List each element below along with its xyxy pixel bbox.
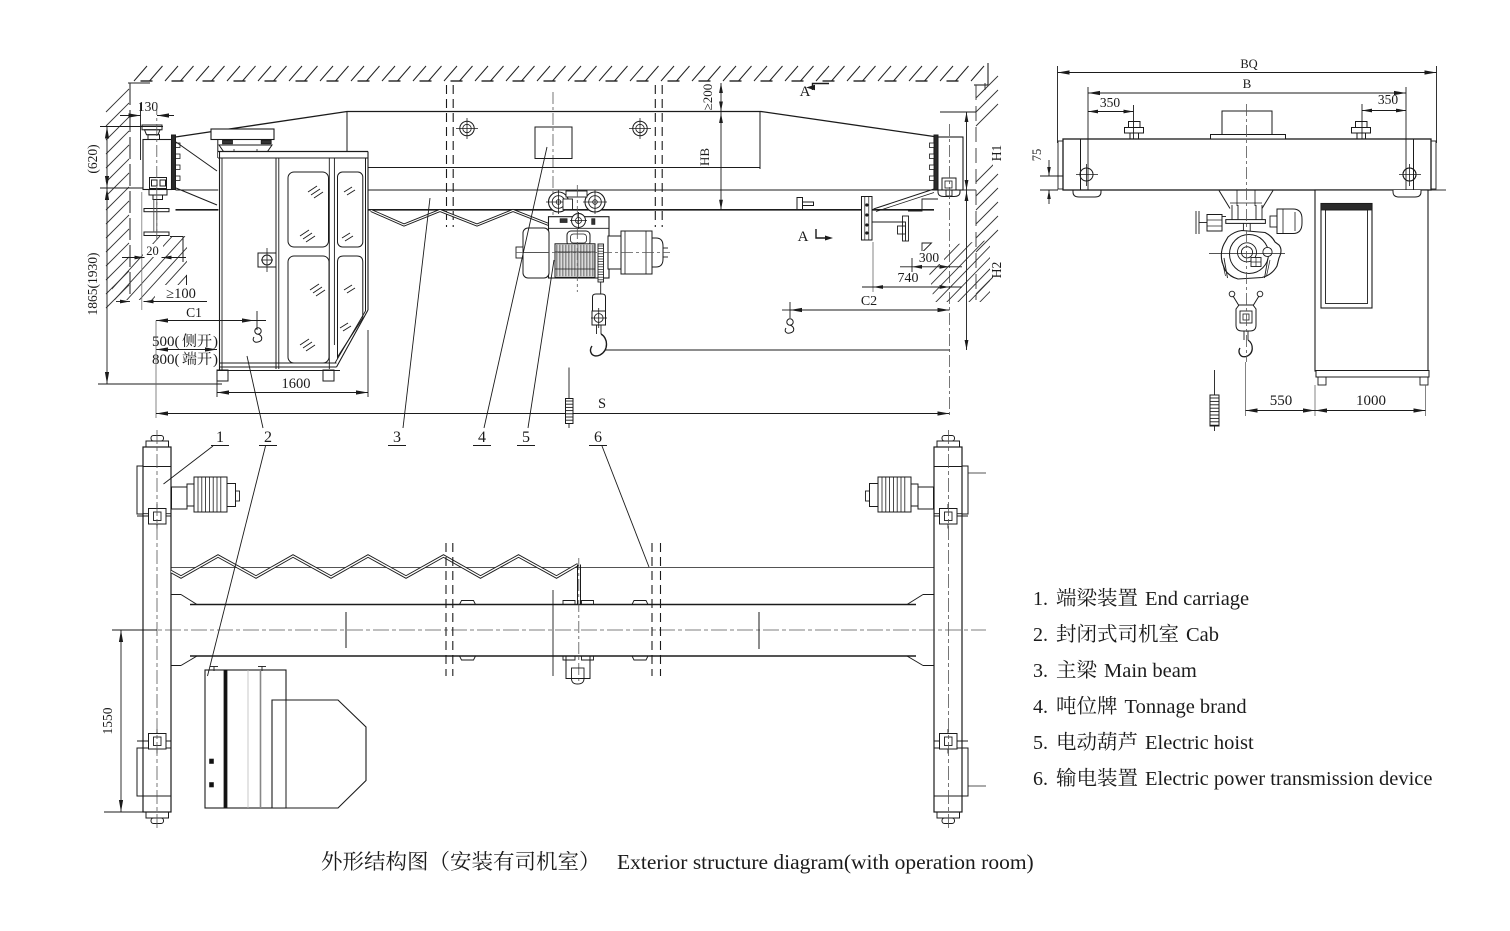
- svg-text:3: 3: [393, 429, 401, 446]
- svg-text:≥100: ≥100: [166, 286, 196, 302]
- svg-text:BQ: BQ: [1240, 57, 1257, 71]
- svg-text:): ): [213, 352, 218, 368]
- svg-text:Main beam: Main beam: [1104, 660, 1197, 682]
- svg-text:C1: C1: [186, 305, 202, 320]
- svg-text:4.: 4.: [1033, 696, 1048, 718]
- svg-text:Exterior structure diagram(wit: Exterior structure diagram(with operatio…: [617, 850, 1034, 874]
- svg-text:75: 75: [1030, 149, 1044, 162]
- svg-text:4: 4: [478, 429, 486, 446]
- svg-text:300: 300: [919, 250, 940, 265]
- svg-text:C2: C2: [861, 294, 877, 309]
- svg-text:A: A: [798, 229, 809, 245]
- svg-text:Electric hoist: Electric hoist: [1145, 732, 1254, 754]
- svg-text:350: 350: [1378, 92, 1399, 107]
- svg-text:Electric power transmission de: Electric power transmission device: [1145, 768, 1432, 790]
- svg-text:1600: 1600: [282, 376, 311, 392]
- svg-text:1000: 1000: [1356, 393, 1386, 409]
- svg-text:A: A: [800, 84, 811, 100]
- svg-text:(620): (620): [85, 144, 100, 173]
- svg-text:6.: 6.: [1033, 768, 1048, 790]
- svg-text:3.: 3.: [1033, 660, 1048, 682]
- svg-text:5.: 5.: [1033, 732, 1048, 754]
- svg-text:2.: 2.: [1033, 624, 1048, 646]
- svg-text:20: 20: [146, 244, 159, 258]
- svg-text:1.: 1.: [1033, 588, 1048, 610]
- svg-text:1550: 1550: [100, 707, 115, 734]
- svg-text:): ): [213, 334, 218, 350]
- svg-text:350: 350: [1100, 95, 1121, 110]
- svg-text:HB: HB: [697, 148, 712, 166]
- svg-text:1: 1: [216, 429, 224, 446]
- svg-text:5: 5: [522, 429, 530, 446]
- svg-text:6: 6: [594, 429, 602, 446]
- svg-text:H2: H2: [989, 262, 1004, 279]
- svg-text:End carriage: End carriage: [1145, 588, 1249, 610]
- svg-text:1865(1930): 1865(1930): [85, 253, 100, 316]
- svg-text:Cab: Cab: [1186, 624, 1219, 646]
- svg-text:S: S: [598, 396, 606, 412]
- svg-text:B: B: [1243, 76, 1252, 91]
- svg-text:130: 130: [138, 99, 159, 114]
- svg-text:≥200: ≥200: [700, 84, 715, 111]
- svg-text:550: 550: [1270, 393, 1293, 409]
- svg-text:740: 740: [898, 271, 919, 286]
- svg-text:Tonnage brand: Tonnage brand: [1125, 696, 1247, 718]
- svg-text:H1: H1: [989, 145, 1004, 162]
- svg-text:2: 2: [264, 429, 272, 446]
